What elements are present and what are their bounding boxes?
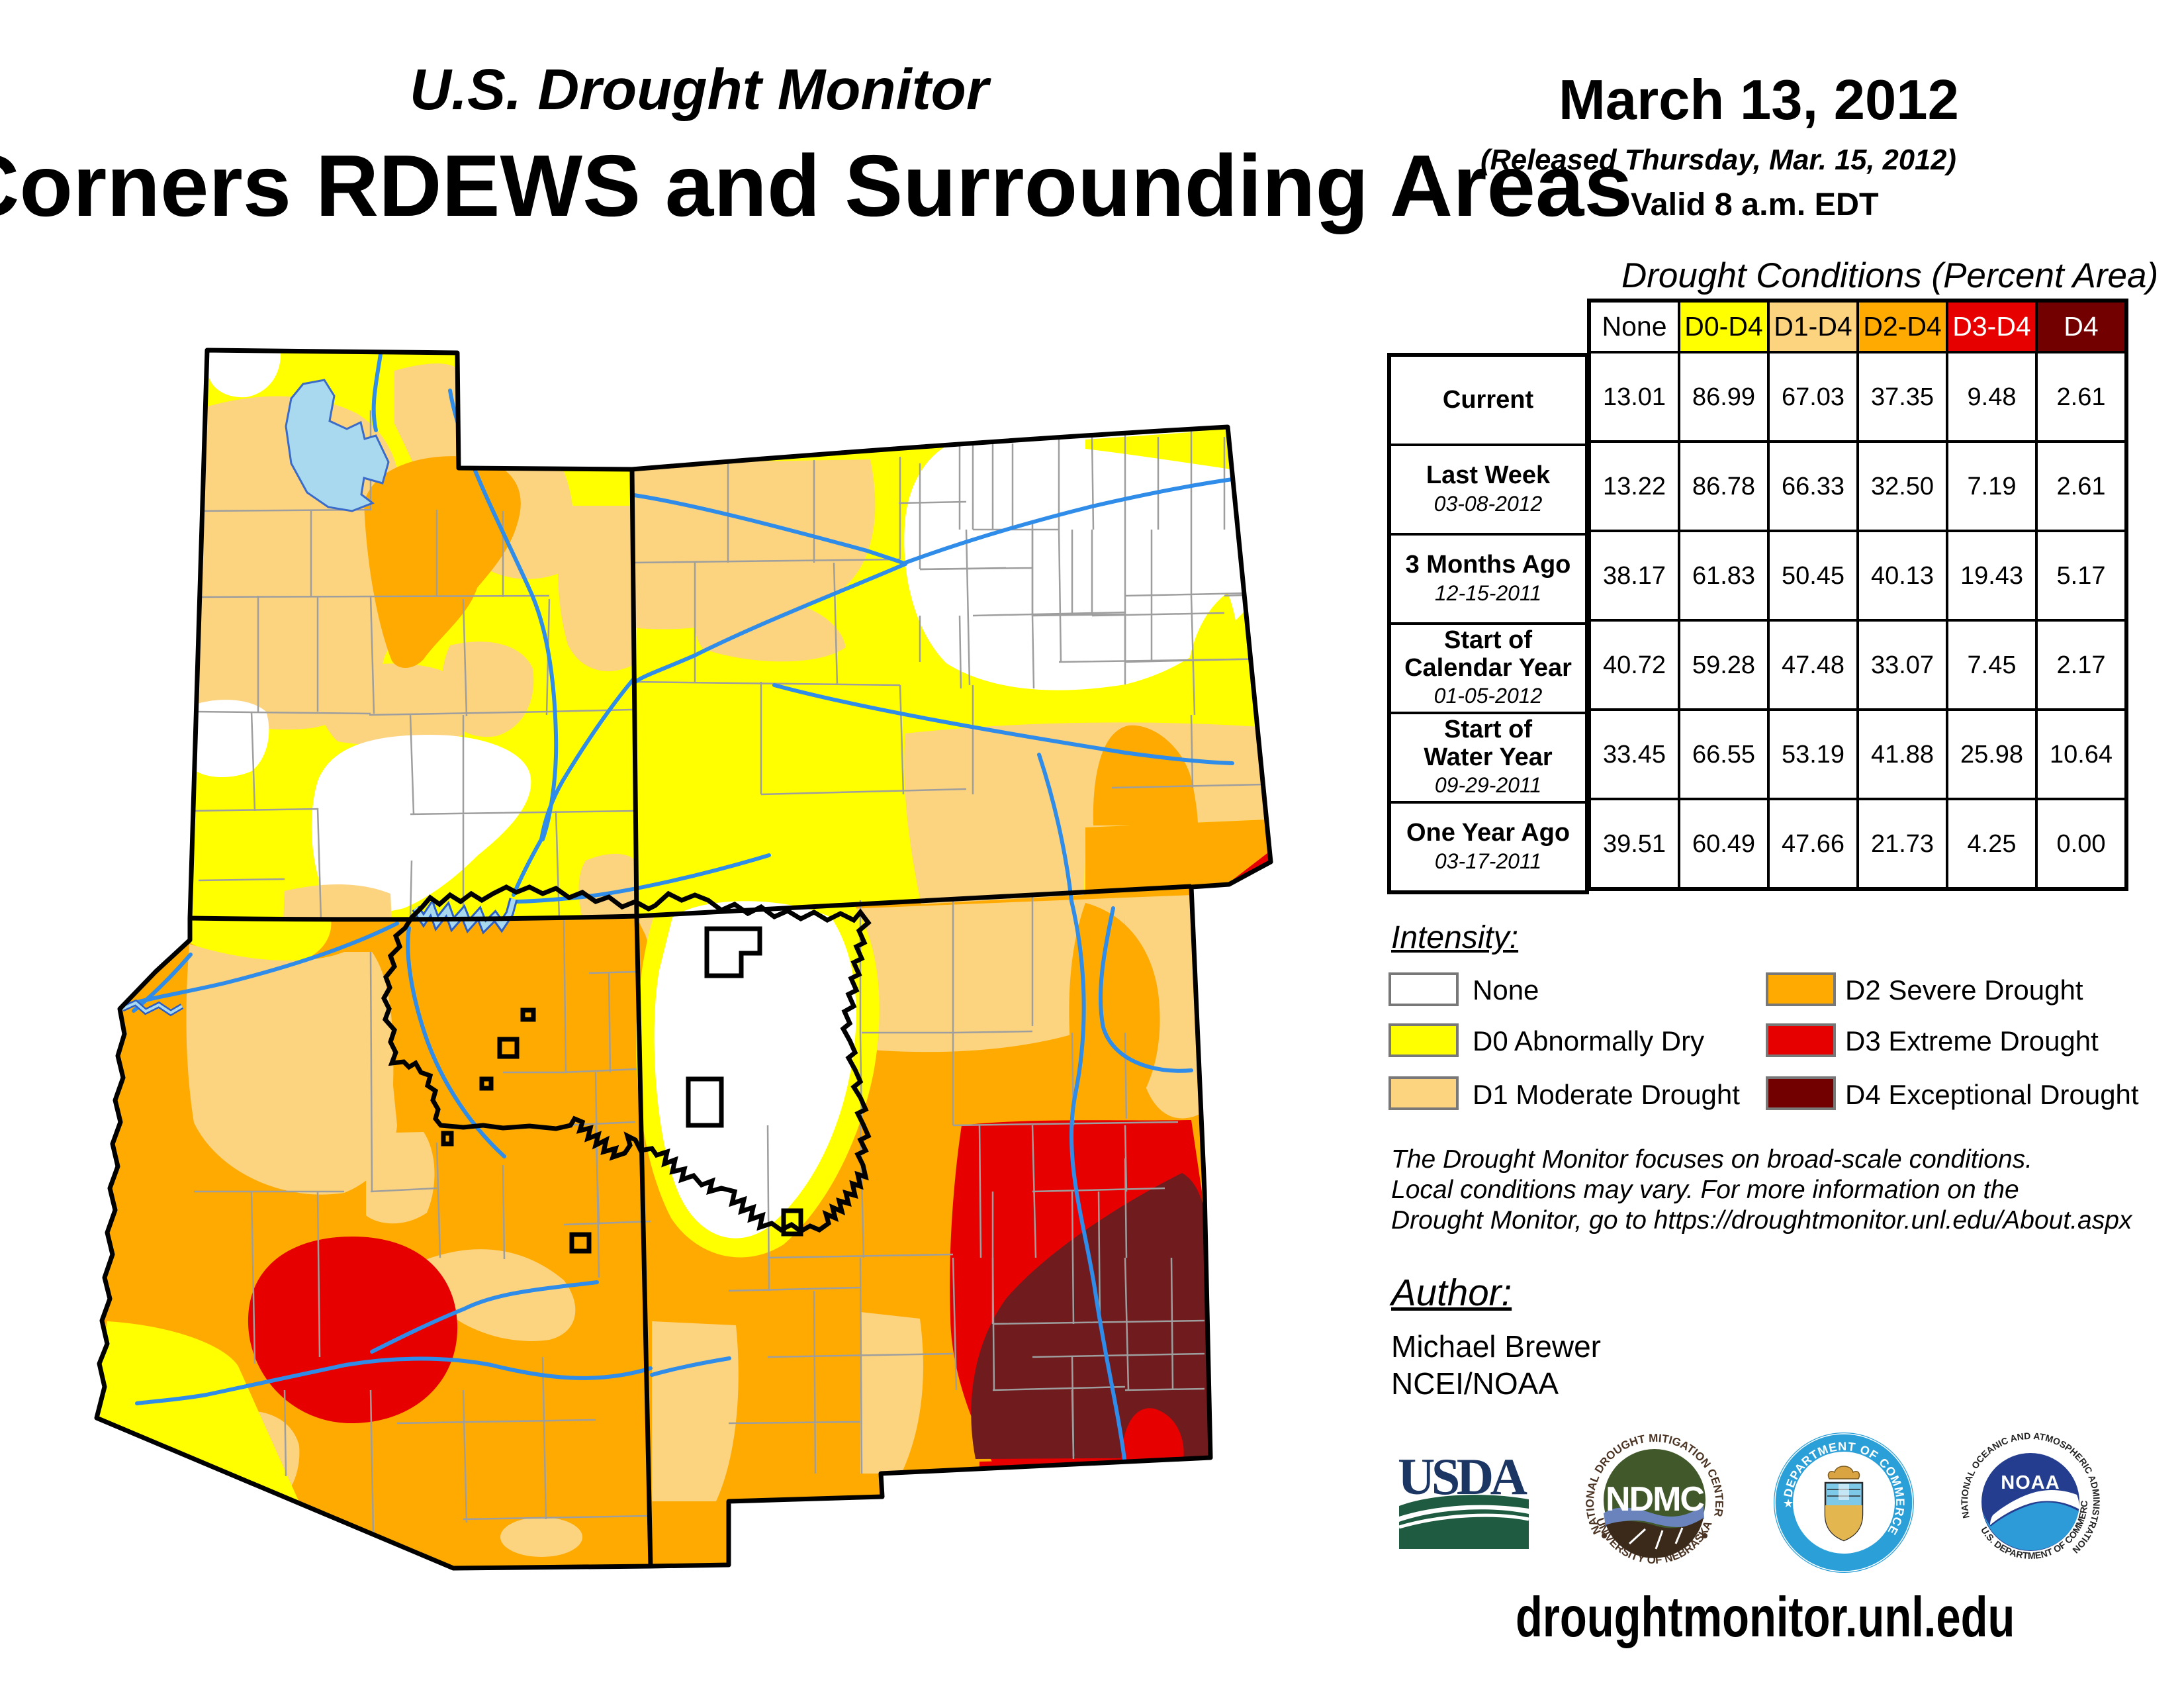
svg-text:★: ★	[1884, 1497, 1894, 1510]
svg-text:NOAA: NOAA	[2001, 1472, 2060, 1493]
svg-text:★: ★	[1783, 1497, 1794, 1510]
svg-text:NDMC: NDMC	[1606, 1480, 1704, 1519]
